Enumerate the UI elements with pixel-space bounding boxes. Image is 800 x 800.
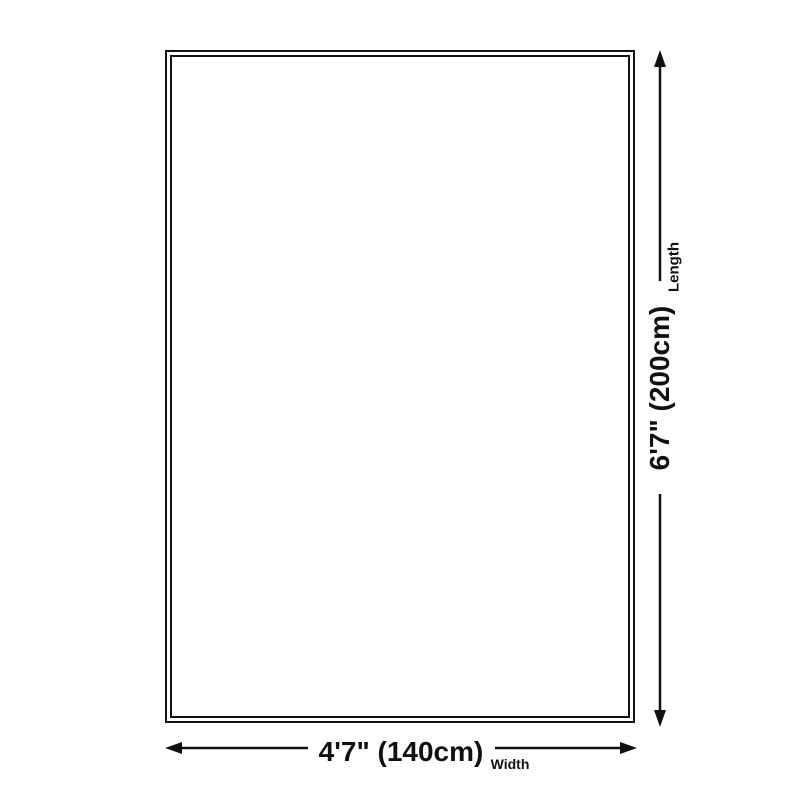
product-outline-inner-border: [170, 55, 630, 718]
length-dimension-label: Length: [666, 242, 683, 292]
arrow-up-icon: [654, 50, 666, 67]
product-outline-outer-border: [165, 50, 635, 723]
arrow-left-icon: [165, 742, 182, 754]
width-dimension-value: 4'7" (140cm): [319, 736, 484, 768]
length-dimension-value: 6'7" (200cm): [644, 306, 676, 471]
arrow-down-icon: [654, 710, 666, 727]
size-diagram: 6'7" (200cm) Length 4'7" (140cm) Width: [0, 0, 800, 800]
arrow-right-icon: [620, 742, 637, 754]
width-dimension-label: Width: [491, 756, 530, 772]
